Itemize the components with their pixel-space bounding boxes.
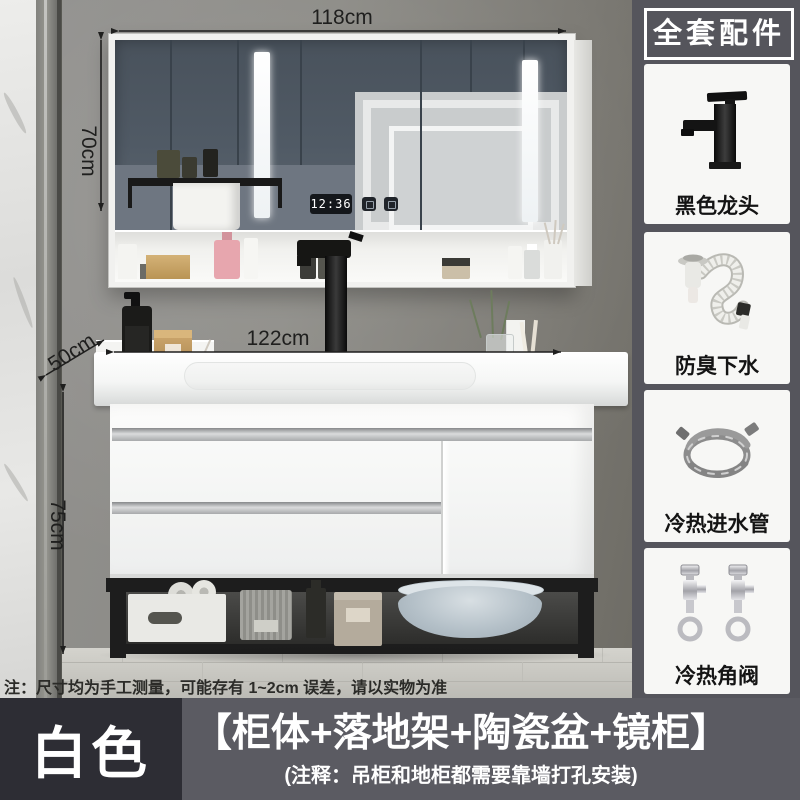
dimension-cabinet-height: 75cm bbox=[45, 490, 69, 560]
bundle-banner: 【柜体+落地架+陶瓷盆+镜柜】 (注释：吊柜和地柜都需要靠墙打孔安装) bbox=[182, 698, 800, 800]
measurement-note: 注：尺寸均为手工测量，可能存有 1~2cm 误差，请以实物为准 bbox=[4, 674, 447, 698]
accessory-label: 冷热角阀 bbox=[644, 660, 790, 690]
color-option-badge: 白色 bbox=[0, 698, 182, 800]
accessories-panel-title: 全套配件 bbox=[644, 8, 794, 60]
dimension-counter-width: 122cm bbox=[218, 327, 338, 351]
bundle-note: (注释：吊柜和地柜都需要靠墙打孔安装) bbox=[284, 759, 637, 788]
accessory-label: 防臭下水 bbox=[644, 350, 790, 380]
accessories-panel: 全套配件 黑色龙头 bbox=[632, 0, 800, 698]
black-faucet-icon bbox=[667, 72, 767, 192]
angle-valve-icon bbox=[667, 552, 767, 662]
dimension-mirror-width: 118cm bbox=[282, 6, 402, 30]
accessory-card-inlet-hose: 冷热进水管 bbox=[644, 390, 790, 542]
inlet-hose-icon bbox=[667, 396, 767, 510]
bundle-title: 【柜体+落地架+陶瓷盆+镜柜】 bbox=[193, 711, 729, 757]
accessory-card-drain: 防臭下水 bbox=[644, 232, 790, 384]
accessory-card-faucet: 黑色龙头 bbox=[644, 64, 790, 224]
drain-hose-icon bbox=[667, 238, 767, 352]
accessory-card-angle-valves: 冷热角阀 bbox=[644, 548, 790, 694]
accessory-label: 黑色龙头 bbox=[644, 190, 790, 220]
product-image: 12:36 bbox=[0, 0, 800, 800]
dimension-mirror-height: 70cm bbox=[76, 116, 100, 186]
bathroom-photo: 12:36 bbox=[0, 0, 632, 698]
accessory-label: 冷热进水管 bbox=[644, 508, 790, 538]
